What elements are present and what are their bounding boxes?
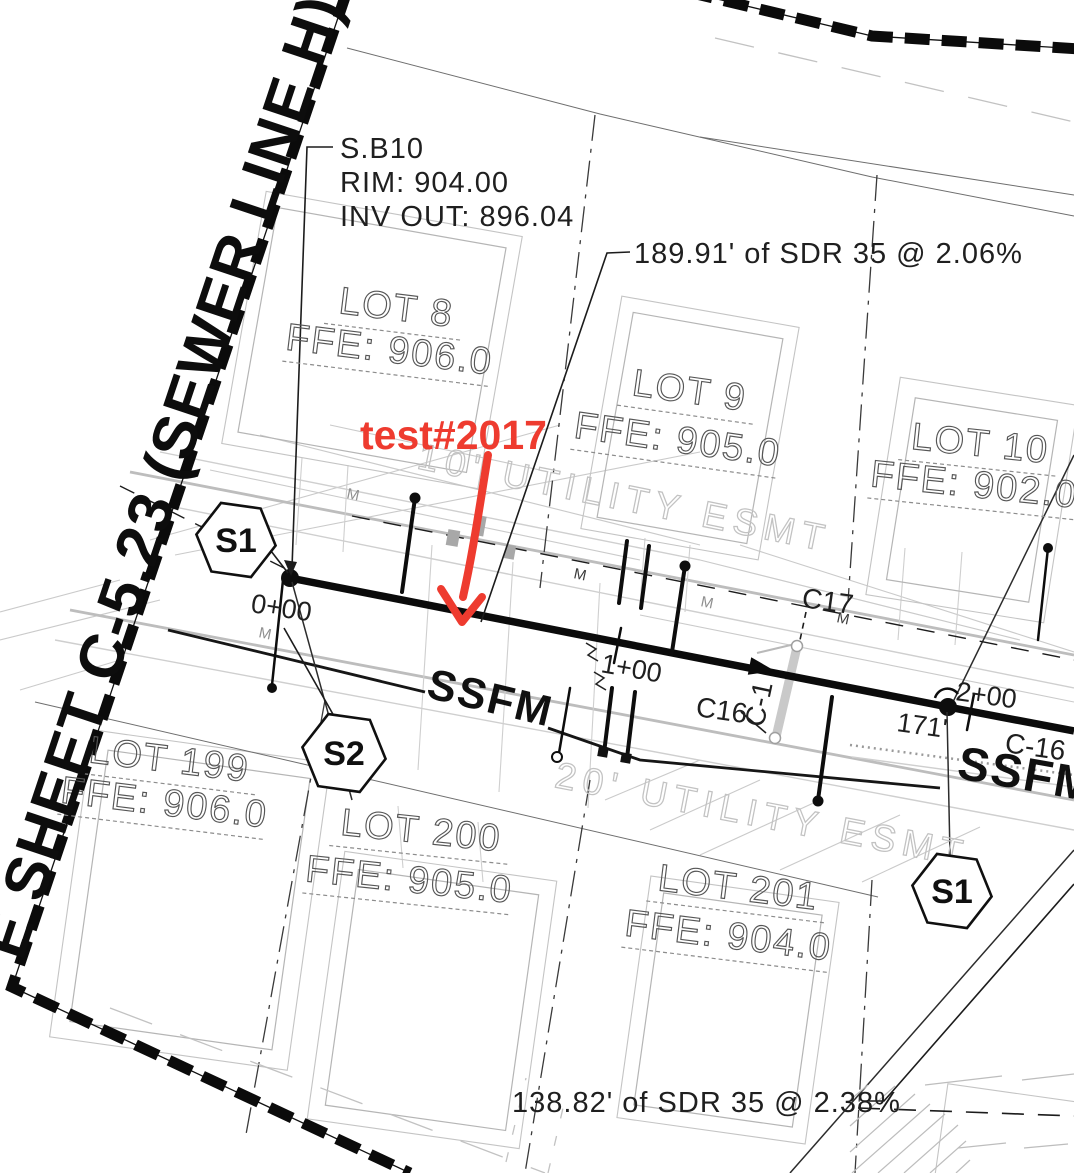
red-annotation: test#2017 [360,412,547,622]
crossing-label-c17: C17 [800,582,855,620]
pipe-callout-lower: 138.82' of SDR 35 @ 2.38% [512,1087,901,1119]
structure-marker-label: S1 [931,873,973,911]
structure-rim-label: RIM: 904.00 [340,167,509,199]
structure-marker-label: S1 [215,522,257,560]
watermain-symbol: M [257,624,273,643]
lot-name: LOT 200 [339,802,504,861]
pipe-callout-upper: 189.91' of SDR 35 @ 2.06% [634,238,1023,270]
structure-marker-s2: S2 [297,711,390,795]
force-main-label-left: SSFM [423,660,558,736]
plan-sheet: M M M M M S.B10 RIM: 904.00 INV OUT: 896… [0,0,1074,1173]
matchline-dashed-top [688,0,1074,49]
distance-label-171: 171' [895,707,949,744]
sewer-plan-canvas[interactable]: M M M M M S.B10 RIM: 904.00 INV OUT: 896… [0,0,1074,1173]
watermain-symbol: M [699,593,715,612]
structure-id-label: S.B10 [340,133,424,165]
crossing-label-c1: C-1 [739,679,779,730]
structure-inv-label: INV OUT: 896.04 [340,201,574,233]
structure-callout-block: S.B10 RIM: 904.00 INV OUT: 896.04 [340,133,574,233]
station-label-1-00: 1+00 [599,648,664,688]
lot-name: LOT 9 [630,362,750,420]
watermain-symbol: M [572,565,588,584]
c17-leader [800,612,806,640]
structure-marker-label: S2 [323,735,365,773]
building-pad-corner [930,1084,1074,1173]
structure-marker-leaders [271,551,334,716]
structure-marker-s1-upper: S1 [192,500,281,580]
station-label-0-00: 0+00 [249,588,314,627]
red-annotation-text: test#2017 [360,412,547,458]
